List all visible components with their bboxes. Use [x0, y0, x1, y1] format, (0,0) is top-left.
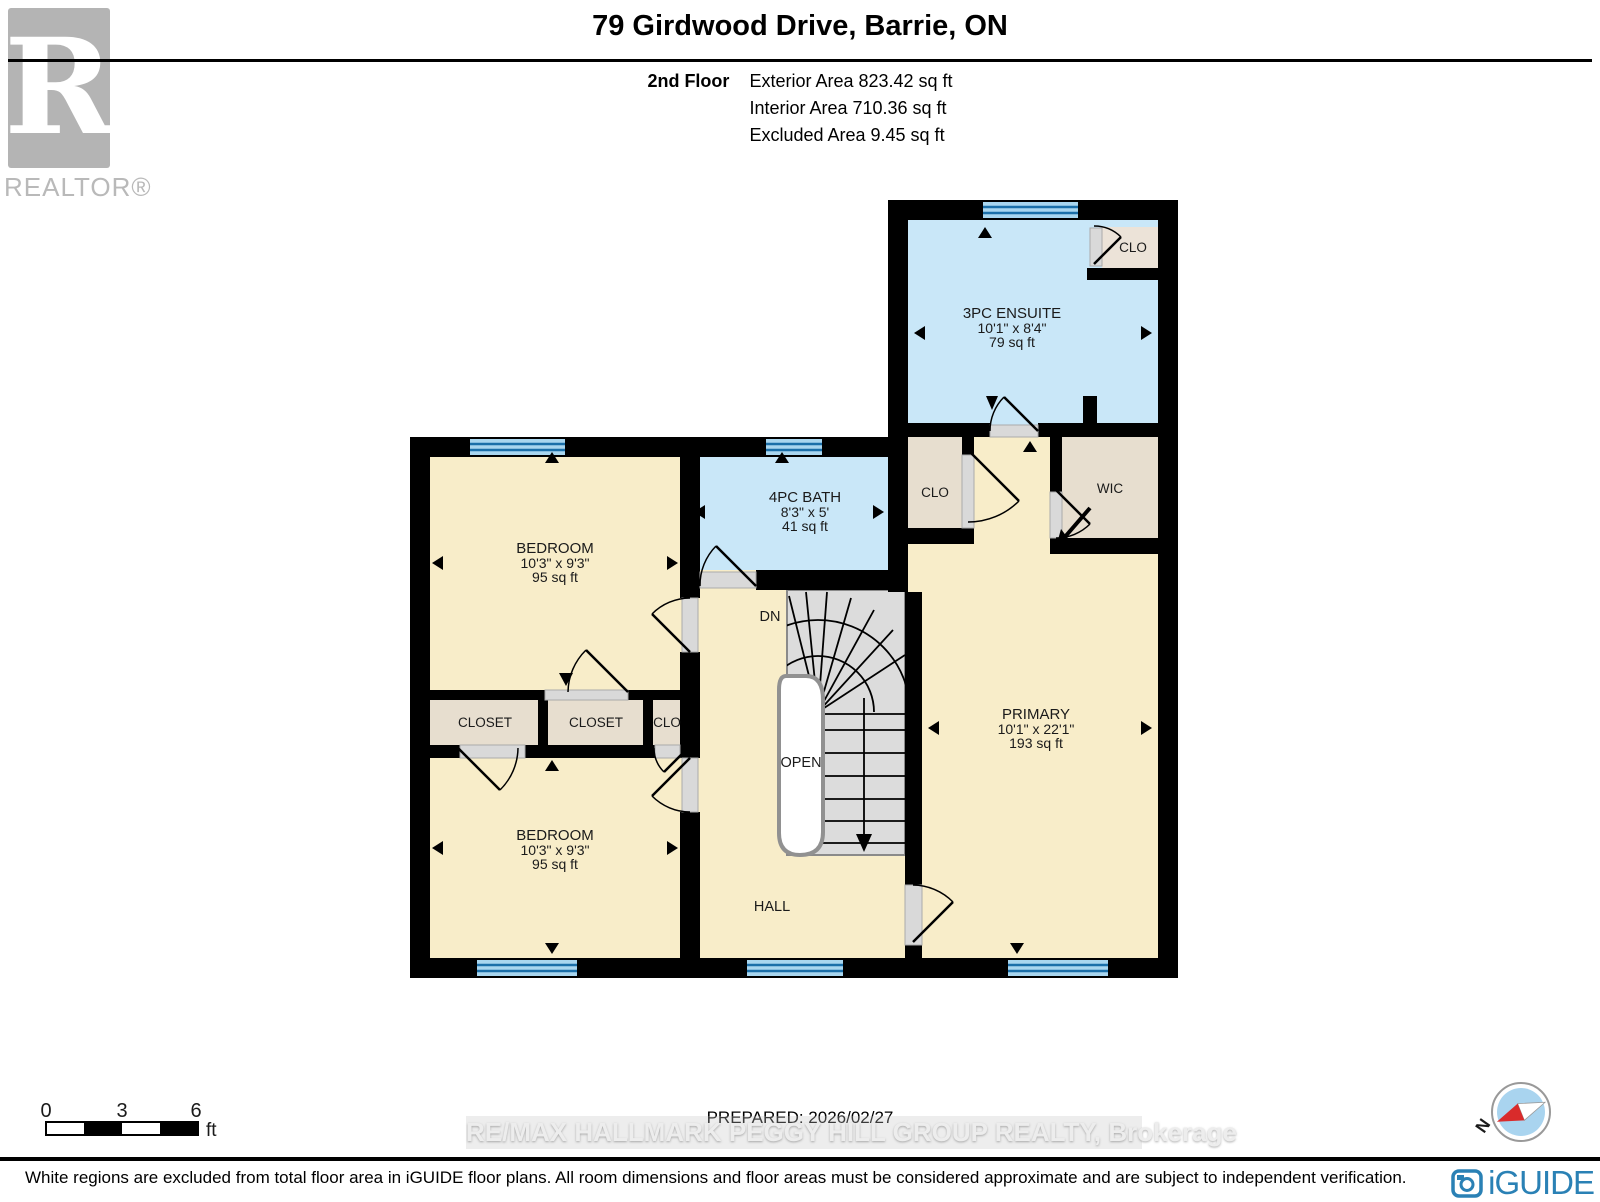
window-primary [1008, 960, 1108, 976]
stat-interior-area: Interior Area 710.36 sq ft [749, 95, 952, 122]
floor-label: 2nd Floor [647, 68, 729, 149]
header-divider [8, 59, 1592, 62]
area-stats: Exterior Area 823.42 sq ft Interior Area… [749, 68, 952, 149]
window-bedroom-top [470, 439, 565, 455]
stat-exterior-area: Exterior Area 823.42 sq ft [749, 68, 952, 95]
page-title: 79 Girdwood Drive, Barrie, ON [0, 10, 1600, 43]
label-ensuite-area: 79 sq ft [989, 334, 1035, 350]
label-clo-mid: CLO [921, 485, 949, 500]
iguide-camera-icon [1450, 1167, 1484, 1199]
iguide-logo-text: iGUIDE [1488, 1164, 1594, 1202]
window-hall [747, 960, 843, 976]
label-closet-mid: CLOSET [569, 715, 623, 730]
label-hall: HALL [754, 899, 790, 915]
label-clo-hall: CLO [653, 715, 681, 730]
label-bedroom-bottom-area: 95 sq ft [532, 856, 578, 872]
floor-plan: 3PC ENSUITE 10'1" x 8'4" 79 sq ft 4PC BA… [0, 0, 1600, 1198]
brokerage-watermark: RE/MAX HALLMARK PEGGY HILL GROUP REALTY,… [466, 1116, 1142, 1149]
label-open-below: OPEN [780, 755, 821, 771]
label-bedroom-top-area: 95 sq ft [532, 569, 578, 585]
stat-excluded-area: Excluded Area 9.45 sq ft [749, 122, 952, 149]
window-ensuite [983, 202, 1078, 218]
disclaimer-text: White regions are excluded from total fl… [25, 1168, 1407, 1188]
label-bath-area: 41 sq ft [782, 518, 828, 534]
iguide-logo: iGUIDE [1444, 1164, 1594, 1202]
label-wic: WIC [1097, 481, 1123, 496]
label-primary-area: 193 sq ft [1009, 735, 1063, 751]
footer-divider [0, 1157, 1600, 1161]
realtor-logo-text: REALTOR® [4, 172, 119, 203]
window-bath [766, 439, 822, 455]
label-stairs-down: DN [760, 609, 781, 625]
floorplan-page: { "header": { "title": "79 Girdwood Driv… [0, 0, 1600, 1198]
floor-stats: 2nd Floor Exterior Area 823.42 sq ft Int… [0, 68, 1600, 149]
room-clo-mid [908, 437, 962, 528]
label-clo-ensuite: CLO [1119, 240, 1147, 255]
label-closet-left: CLOSET [458, 715, 512, 730]
window-bedroom-bottom [477, 960, 577, 976]
